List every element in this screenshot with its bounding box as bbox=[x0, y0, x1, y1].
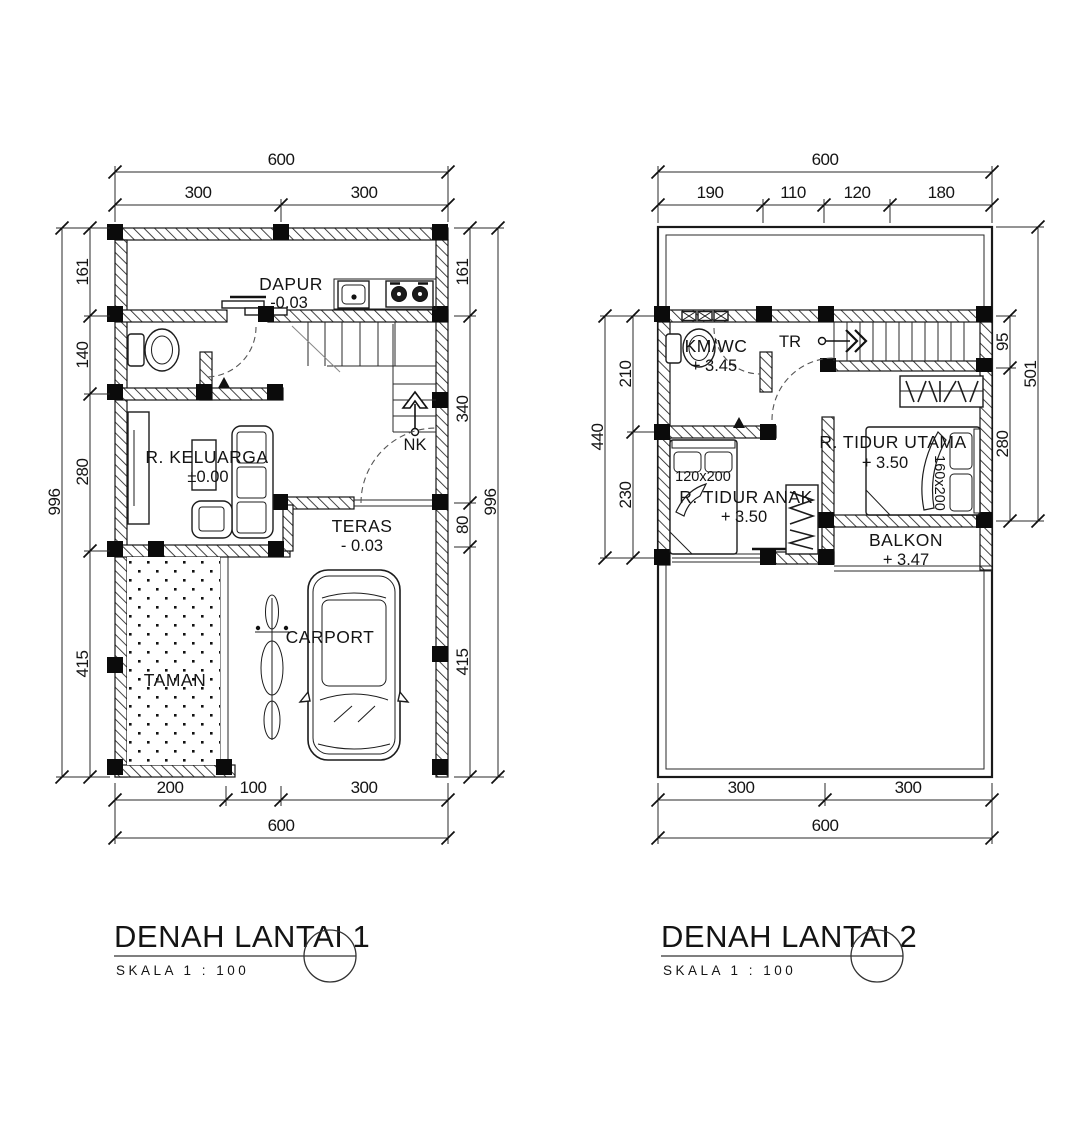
plan1-wall-teras-side bbox=[283, 505, 293, 551]
plan2-stairs: TR bbox=[779, 322, 964, 361]
tv-cabinet bbox=[128, 412, 149, 524]
floor-plan-svg: NK bbox=[0, 0, 1080, 1131]
plan2-title-block: DENAH LANTAI 2 SKALA 1 : 100 bbox=[661, 919, 917, 982]
plan1-taman-floor bbox=[127, 557, 220, 765]
dim-p1-left-3: 415 bbox=[73, 651, 92, 678]
label-teras: TERAS bbox=[332, 516, 393, 536]
plan2-wall-balkon bbox=[828, 515, 992, 527]
dim-p2-bottom-0: 300 bbox=[728, 778, 755, 797]
car bbox=[300, 570, 408, 760]
dim-p1-bottom-1: 100 bbox=[240, 778, 267, 797]
label-balkon: BALKON bbox=[869, 530, 943, 550]
dim-p2-left-1: 230 bbox=[616, 482, 635, 509]
plan2-stair-label: TR bbox=[779, 333, 801, 351]
toilet-1 bbox=[128, 329, 179, 371]
dim-p1-bottom-2: 300 bbox=[351, 778, 378, 797]
label-taman: TAMAN bbox=[144, 670, 206, 690]
dim-p1-top-1: 300 bbox=[351, 183, 378, 202]
plan2: TR bbox=[588, 150, 1045, 982]
plan2-wall-anak-top bbox=[658, 426, 776, 438]
plan2-topwall-vent-boxes bbox=[682, 312, 728, 321]
plan1-bath-door-arc bbox=[206, 327, 256, 377]
dim-p1-bottom-0: 200 bbox=[157, 778, 184, 797]
dim-p2-top-3: 180 bbox=[928, 183, 955, 202]
plan2-wall-under-stairs bbox=[826, 361, 984, 371]
plan1-title: DENAH LANTAI 1 bbox=[114, 919, 370, 954]
dim-p1-bottom-total: 600 bbox=[268, 816, 295, 835]
label-dapur-level: -0.03 bbox=[270, 294, 308, 312]
dim-p1-left-total: 996 bbox=[45, 489, 64, 516]
dim-p1-right-1: 340 bbox=[453, 396, 472, 423]
dim-p1-left-2: 280 bbox=[73, 459, 92, 486]
label-keluarga: R. KELUARGA bbox=[145, 447, 268, 467]
label-teras-level: - 0.03 bbox=[341, 537, 383, 555]
dim-p2-left-0: 210 bbox=[616, 361, 635, 388]
plan1-teras-window bbox=[354, 500, 436, 506]
label-anak-bed-size: 120x200 bbox=[675, 469, 731, 485]
label-balkon-level: + 3.47 bbox=[883, 551, 929, 569]
motorcycle bbox=[255, 595, 289, 740]
dim-p1-top-0: 300 bbox=[185, 183, 212, 202]
plan1-stairs: NK bbox=[292, 322, 436, 454]
wardrobe-utama bbox=[900, 376, 983, 407]
dim-p2-top-1: 110 bbox=[780, 183, 806, 202]
plan1-wall-kitchen-left bbox=[115, 310, 227, 322]
plan2-stair-down-arrow bbox=[819, 330, 867, 352]
plan2-wall-kmwc-stub bbox=[760, 352, 772, 392]
dim-p1-right-3: 415 bbox=[453, 649, 472, 676]
label-anak: R. TIDUR ANAK bbox=[679, 487, 813, 507]
label-carport: CARPORT bbox=[286, 627, 375, 647]
dim-p1-right-0: 161 bbox=[453, 259, 472, 286]
architectural-drawing-sheet: NK bbox=[0, 0, 1080, 1131]
label-utama-level: + 3.50 bbox=[862, 454, 908, 472]
dim-p2-top-total: 600 bbox=[812, 150, 839, 169]
plan2-title: DENAH LANTAI 2 bbox=[661, 919, 917, 954]
kitchen-counter bbox=[334, 279, 436, 309]
label-kmwc: KM/WC bbox=[685, 336, 748, 356]
label-kmwc-level: + 3.45 bbox=[691, 357, 737, 375]
plan1-scale: SKALA 1 : 100 bbox=[116, 963, 249, 978]
dim-p2-top-2: 120 bbox=[844, 183, 871, 202]
label-utama: R. TIDUR UTAMA bbox=[819, 432, 966, 452]
dim-p2-right-0: 95 bbox=[993, 333, 1012, 351]
dim-p1-right-2: 80 bbox=[453, 516, 472, 534]
label-keluarga-level: ±0.00 bbox=[187, 468, 228, 486]
plan1-wall-living-bottom bbox=[115, 545, 290, 557]
dim-p2-top-0: 190 bbox=[697, 183, 724, 202]
dim-p2-bottom-1: 300 bbox=[895, 778, 922, 797]
label-utama-bed-size: 160x200 bbox=[931, 455, 947, 511]
floor-drain-icon bbox=[218, 377, 230, 388]
label-dapur: DAPUR bbox=[259, 274, 323, 294]
plan1-title-block: DENAH LANTAI 1 SKALA 1 : 100 bbox=[114, 919, 370, 982]
plan1-stair-break-line bbox=[292, 326, 340, 372]
dim-p2-left-total: 440 bbox=[588, 424, 607, 451]
dim-p1-left-1: 140 bbox=[73, 342, 92, 369]
dim-p1-left-0: 161 bbox=[73, 259, 92, 286]
dim-p2-right-1: 280 bbox=[993, 431, 1012, 458]
dim-p1-top-total: 600 bbox=[268, 150, 295, 169]
dim-p1-right-total: 996 bbox=[481, 489, 500, 516]
floor-drain-icon-2 bbox=[733, 417, 745, 428]
plan1: NK bbox=[45, 150, 505, 982]
label-anak-level: + 3.50 bbox=[721, 508, 767, 526]
plan2-scale: SKALA 1 : 100 bbox=[663, 963, 796, 978]
dim-p2-right-outer: 501 bbox=[1021, 361, 1040, 388]
dim-p2-bottom-total: 600 bbox=[812, 816, 839, 835]
plan1-stair-label: NK bbox=[404, 436, 427, 454]
